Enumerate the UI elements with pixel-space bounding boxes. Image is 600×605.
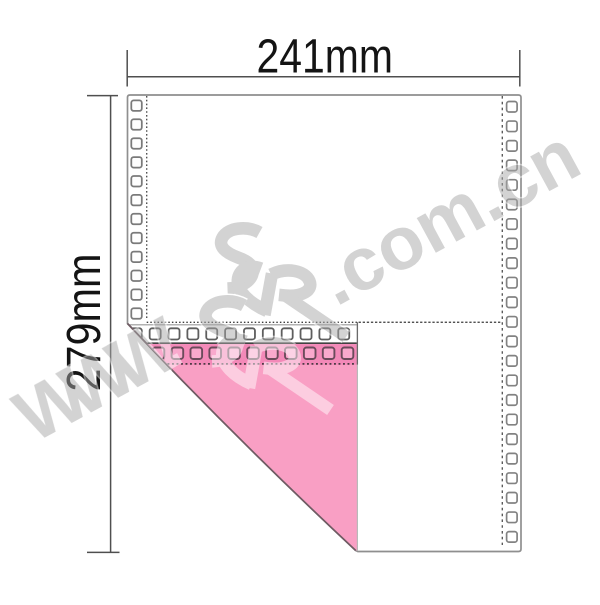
svg-text:241mm: 241mm: [257, 30, 394, 84]
